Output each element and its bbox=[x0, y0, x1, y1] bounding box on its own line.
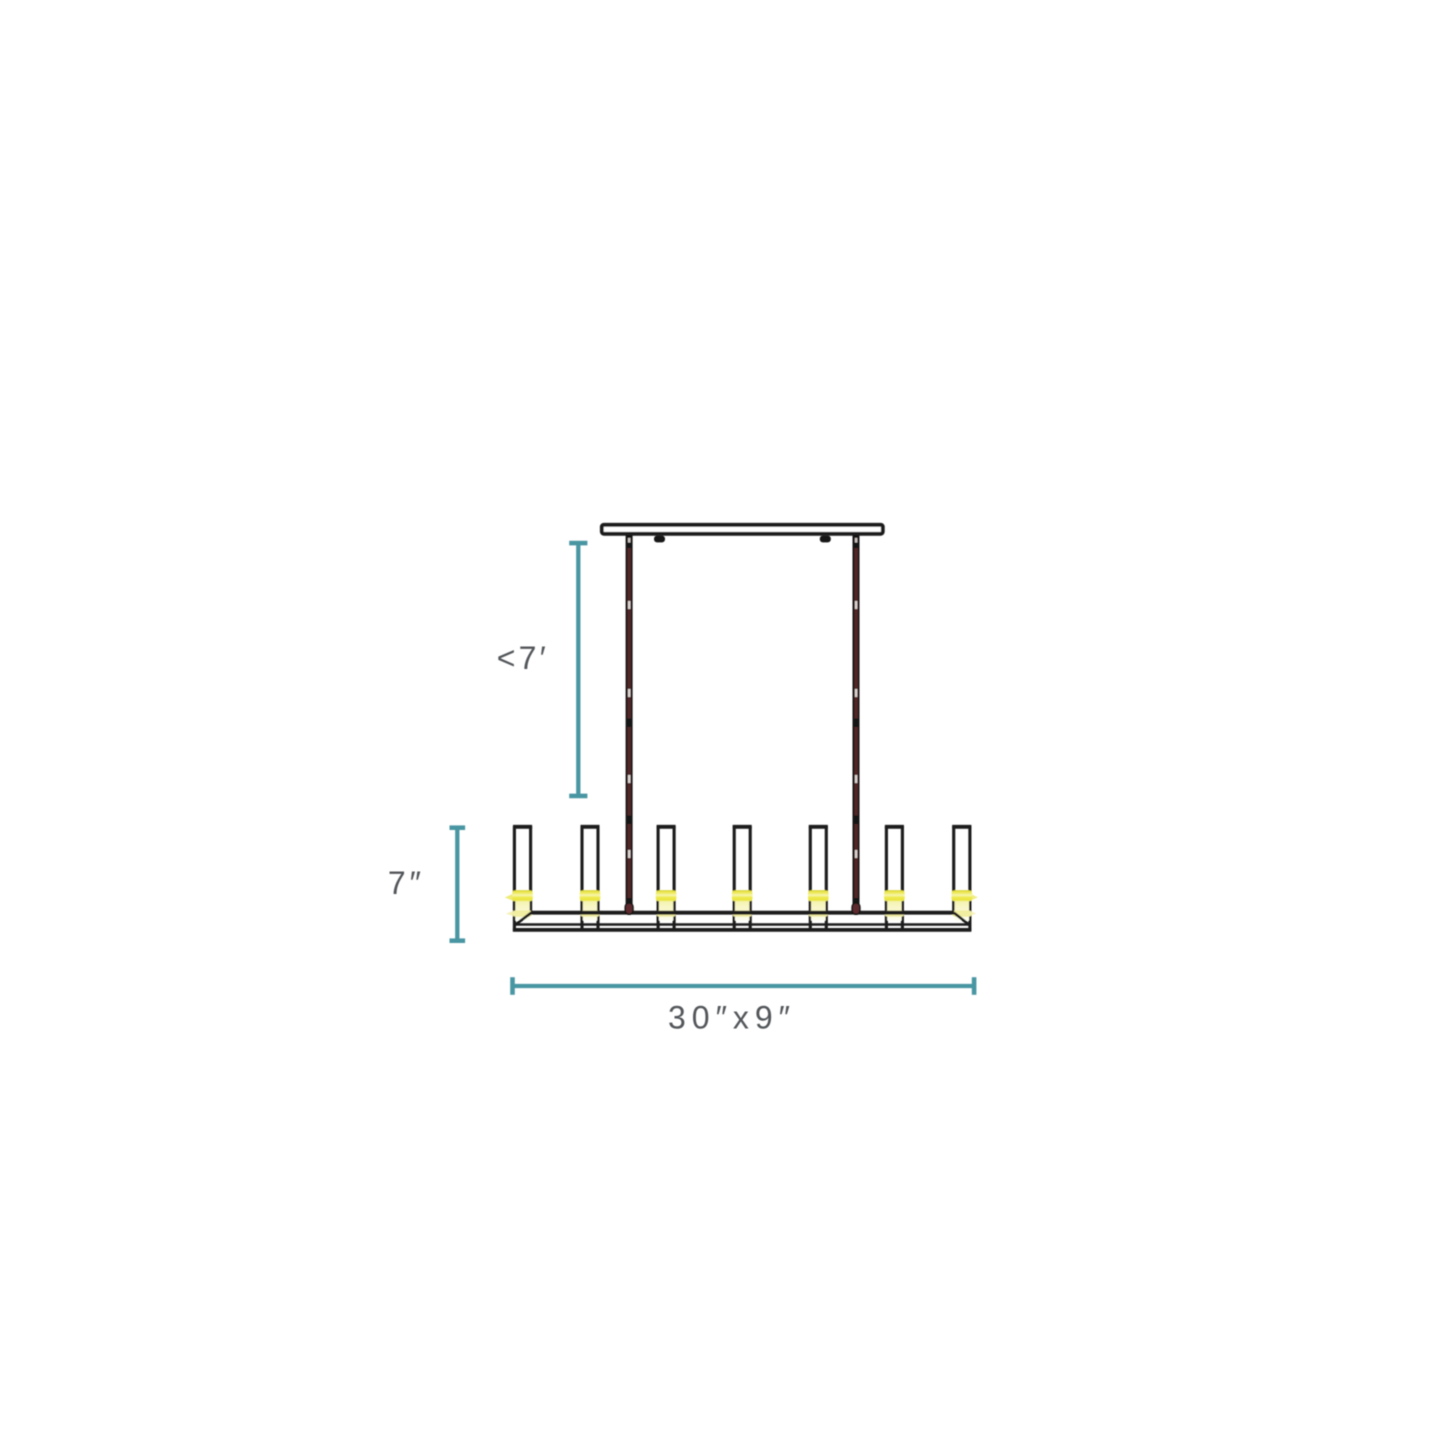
svg-text:<7′: <7′ bbox=[497, 640, 546, 676]
svg-text:7″: 7″ bbox=[388, 865, 421, 901]
svg-text:30″x9″: 30″x9″ bbox=[668, 999, 790, 1035]
